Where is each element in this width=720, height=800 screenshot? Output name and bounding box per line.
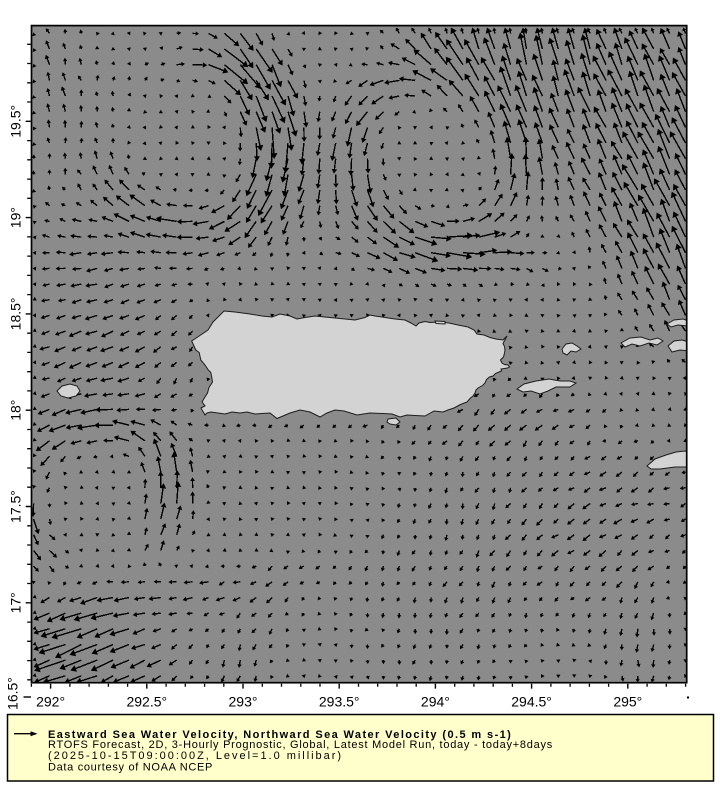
- svg-text:17.5°: 17.5°: [8, 490, 24, 523]
- svg-text:295°: 295°: [613, 694, 642, 710]
- svg-text:292°: 292°: [36, 694, 65, 710]
- svg-text:19°: 19°: [8, 207, 24, 228]
- svg-text:292.5°: 292.5°: [126, 694, 167, 710]
- svg-text:294.5°: 294.5°: [511, 694, 552, 710]
- svg-text:293.5°: 293.5°: [319, 694, 360, 710]
- svg-text:294°: 294°: [421, 694, 450, 710]
- svg-text:16.5°: 16.5°: [5, 677, 21, 710]
- svg-text:18°: 18°: [8, 400, 24, 421]
- svg-text:17°: 17°: [8, 592, 24, 613]
- svg-text:Data courtesy of NOAA NCEP: Data courtesy of NOAA NCEP: [48, 762, 213, 774]
- svg-text:(2025-10-15T09:00:00Z, Level=1: (2025-10-15T09:00:00Z, Level=1.0 milliba…: [48, 750, 343, 762]
- svg-text:293°: 293°: [229, 694, 258, 710]
- svg-text:19.5°: 19.5°: [8, 105, 24, 138]
- svg-text:18.5°: 18.5°: [8, 297, 24, 330]
